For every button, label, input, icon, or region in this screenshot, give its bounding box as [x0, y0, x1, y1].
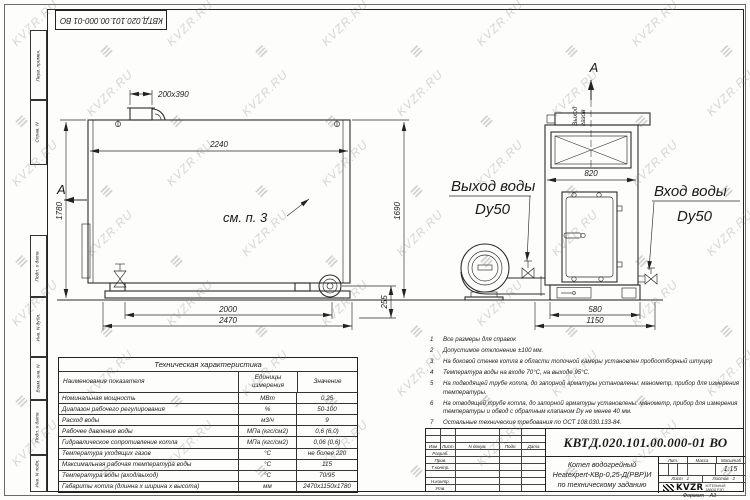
- title-block-cell: [456, 485, 501, 491]
- table-cell: %: [239, 404, 297, 414]
- side-strip-label: Инв. N дубл.: [36, 313, 41, 341]
- title-block-row: Разраб.: [426, 450, 545, 457]
- masshtab-label: Масштаб: [717, 457, 745, 463]
- boiler-drawing: 200x390 2240 1780 1690 см. п. 3: [47, 28, 744, 338]
- note-text: Остальные технические требования по ОСТ …: [443, 419, 744, 428]
- table-row: Максимальная рабочая температура воды°С1…: [59, 460, 357, 471]
- table-cell: 0,25: [297, 393, 357, 403]
- tech-table-title: Техническая характеристика: [59, 358, 357, 372]
- side-strip-label: Перв. примен.: [36, 49, 41, 81]
- note-number: 6: [430, 400, 443, 417]
- table-cell: °С: [239, 460, 297, 470]
- sheet-value: 1: [687, 476, 689, 481]
- name-line-3: по техническому заданию: [558, 480, 647, 490]
- title-block-cell: [456, 464, 501, 470]
- table-cell: Расход воды: [59, 415, 239, 425]
- table-row: Расход водым3/ч9: [59, 415, 357, 426]
- water-outlet-label: Выход воды: [451, 178, 535, 195]
- table-row: Диапазон рабочего регулирования%50-100: [59, 404, 357, 415]
- table-cell: Максимальная рабочая температура воды: [59, 460, 239, 470]
- table-cell: 0,06 (0,6): [297, 437, 357, 447]
- note-text: На отводящей трубе котла, до запорной ар…: [443, 400, 744, 417]
- tech-table-body: Номинальная мощностьМВт0,25Диапазон рабо…: [59, 393, 357, 492]
- side-strip-box: Подп. и дата: [30, 400, 47, 455]
- title-block-row: Утв.: [426, 485, 545, 491]
- title-block-cell: [500, 464, 522, 470]
- note-item: 7Остальные технические требования по ОСТ…: [430, 419, 744, 428]
- pump-flange: [319, 275, 341, 297]
- table-cell: МВт: [239, 393, 297, 403]
- water-inlet-valve: [638, 268, 657, 284]
- side-strip-label: Взам. инв. N: [36, 365, 41, 393]
- table-cell: Номинальная мощность: [59, 393, 239, 403]
- note-number: 1: [430, 336, 443, 345]
- table-cell: Рабочее давление воды: [59, 426, 239, 436]
- note-item: 3На боковой стенке котла в области топоч…: [430, 358, 744, 367]
- top-doc-number: КВТД.020.101.00.000-01 ВО: [60, 16, 163, 25]
- note-number: 7: [430, 419, 443, 428]
- title-block-cell: Разраб.: [426, 450, 456, 456]
- note-number: 5: [430, 380, 443, 397]
- title-block-grid: Лит. Масса Масштаб 1:15 Лист 1 Листов 2: [659, 457, 745, 493]
- note-number: 4: [430, 369, 443, 378]
- company-logo: KVZR КОТЕЛЬНЫЙ ЗАВОД РЭП: [659, 483, 745, 493]
- table-row: Номинальная мощностьМВт0,25: [59, 393, 357, 404]
- format-value: А3: [710, 493, 717, 499]
- title-block-cell: Подп.: [500, 443, 522, 449]
- side-strip-box: Инв. N подл.: [30, 455, 47, 492]
- table-cell: МПа (кгс/см2): [239, 437, 297, 447]
- table-row: Габариты котла (длинна х ширина х высота…: [59, 482, 357, 492]
- gas-outlet-label-1: Выход: [571, 106, 579, 126]
- tb-sheet-row: Лист 1 Листов 2: [659, 476, 745, 483]
- note-number: 3: [430, 358, 443, 367]
- side-strip-box: Инв. N дубл.: [30, 297, 47, 357]
- dim-height-right: 1690: [393, 202, 402, 220]
- note-item: 4Температура воды на входе 70°С, на выхо…: [430, 369, 744, 378]
- note-text: На подводящей трубе котла, до запорной а…: [443, 380, 744, 397]
- note-text: На боковой стенке котла в области топочн…: [443, 358, 744, 367]
- note-text: Все размеры для справок: [443, 336, 744, 345]
- format-label: Формат А3: [655, 493, 744, 499]
- title-block-cell: [522, 478, 545, 484]
- side-strip-label: Инв. N подл.: [36, 459, 41, 487]
- title-block-row: [426, 436, 545, 443]
- table-cell: 50-100: [297, 404, 357, 414]
- tb-grid-header: Лит. Масса Масштаб: [659, 457, 745, 464]
- table-cell: 2470х1150х1780: [297, 482, 357, 492]
- water-outlet-dn: Dy50: [475, 201, 511, 218]
- dim-width-top: 2240: [209, 140, 228, 149]
- furnace-door: [562, 192, 622, 282]
- lit-cells: [659, 464, 688, 475]
- title-block-cell: [426, 471, 456, 477]
- water-inlet-label: Вход воды: [654, 183, 727, 200]
- scale-value: 1:15: [716, 464, 745, 475]
- dim-stub: 200x390: [157, 90, 189, 99]
- title-block-cell: [522, 471, 545, 477]
- title-block-cell: [522, 464, 545, 470]
- title-block-row: [426, 471, 545, 478]
- title-block-cell: [522, 450, 545, 456]
- title-block-cell: Изм: [426, 443, 441, 449]
- title-block-cell: [456, 450, 501, 456]
- section-mark-top: А: [589, 60, 599, 75]
- water-outlet-valve: [522, 261, 534, 278]
- sheets-label: Листов: [713, 476, 729, 481]
- note-item: 5На подводящей трубе котла, до запорной …: [430, 380, 744, 397]
- title-block-row: Т.контр.: [426, 464, 545, 471]
- note-number: 2: [430, 347, 443, 356]
- title-block-cell: [426, 429, 441, 435]
- title-block-cell: [522, 436, 545, 442]
- tb-grid-values: 1:15: [659, 464, 745, 476]
- tech-table: Техническая характеристика Наименование …: [58, 357, 358, 493]
- title-block-cell: [426, 436, 441, 442]
- title-block-row: Пров.: [426, 457, 545, 464]
- title-block-cell: Утв.: [426, 485, 456, 491]
- title-block-cell: [456, 478, 501, 484]
- table-cell: м3/ч: [239, 415, 297, 425]
- title-block-cell: Т.контр.: [426, 464, 456, 470]
- title-block-cell: [522, 485, 545, 491]
- dim-foot: 255: [380, 295, 389, 310]
- title-block-cell: Лист: [441, 443, 456, 449]
- drawing-sheet: КВТД.020.101.00.000-01 ВО: [0, 0, 750, 500]
- table-cell: °С: [239, 471, 297, 481]
- table-cell: МПа (кгс/см2): [239, 426, 297, 436]
- title-block-row: Н.контр.: [426, 478, 545, 485]
- dim-height-left: 1780: [55, 202, 64, 220]
- side-strip-box: Взам. инв. N: [30, 357, 47, 400]
- note-item: 1Все размеры для справок: [430, 336, 744, 345]
- note-text: Температура воды на входе 70°С, на выход…: [443, 369, 744, 378]
- title-block-cell: [456, 429, 501, 435]
- table-cell: 115: [297, 460, 357, 470]
- format-word: Формат: [683, 493, 704, 499]
- dim-right-width: 820: [584, 169, 598, 178]
- sheets-value: 2: [733, 476, 735, 481]
- side-strip-box: Подп. и дата: [30, 235, 47, 297]
- lit-label: Лит.: [659, 457, 688, 463]
- kvzr-logo-text: KVZR: [676, 483, 703, 493]
- title-block-cell: Пров.: [426, 457, 456, 463]
- table-cell: Габариты котла (длинна х ширина х высота…: [59, 482, 239, 492]
- title-block-cell: [500, 471, 522, 477]
- table-cell: Диапазон рабочего регулирования: [59, 404, 239, 414]
- tech-table-header: Наименование показателя Единицы измерени…: [59, 372, 357, 393]
- section-mark-left: А: [56, 182, 66, 197]
- title-block-cell: [441, 436, 456, 442]
- title-block: ИзмЛистN докум.Подп.ДатаРазраб.Пров.Т.ко…: [425, 428, 744, 492]
- burner-fan: [461, 244, 545, 300]
- title-block-doc-number: КВТД.020.101.00.000-01 ВО: [546, 429, 745, 457]
- dim-right-bottom-outer: 1150: [586, 316, 604, 325]
- chimney-stub: [127, 108, 165, 120]
- dim-bottom-inner: 2000: [218, 305, 237, 314]
- tb-left: ИзмЛистN докум.Подп.ДатаРазраб.Пров.Т.ко…: [426, 429, 546, 491]
- title-block-cell: [456, 471, 501, 477]
- title-block-cell: [441, 429, 456, 435]
- title-block-cell: [500, 450, 522, 456]
- table-row: Температура уходящих газов°Сне более 220: [59, 449, 357, 460]
- title-block-cell: N докум.: [456, 443, 501, 449]
- title-block-cell: Дата: [522, 443, 545, 449]
- note-item: 6На отводящей трубе котла, до запорной а…: [430, 400, 744, 417]
- side-strip-label: Справ. N: [36, 122, 41, 142]
- table-cell: мм: [239, 482, 297, 492]
- side-strip-box: Справ. N: [30, 100, 47, 165]
- massa-cell: [688, 464, 716, 475]
- kvzr-logo-caption: КОТЕЛЬНЫЙ ЗАВОД РЭП: [705, 484, 725, 492]
- dim-bottom-outer: 2470: [218, 316, 237, 325]
- table-cell: Температура уходящих газов: [59, 449, 239, 459]
- title-block-row: [426, 429, 545, 436]
- title-block-cell: [456, 436, 501, 442]
- title-block-cell: [522, 457, 545, 463]
- dim-right-bottom-inner: 580: [588, 305, 602, 314]
- top-doc-number-box: КВТД.020.101.00.000-01 ВО: [55, 10, 167, 30]
- side-strip-label: Подп. и дата: [36, 412, 41, 442]
- table-cell: 0,6 (6,0): [297, 426, 357, 436]
- logo-caption-2: ЗАВОД РЭП: [705, 488, 725, 492]
- gas-outlet-label-2: газов: [580, 109, 587, 126]
- table-cell: 70/95: [297, 471, 357, 481]
- title-block-row: ИзмЛистN докум.Подп.Дата: [426, 443, 545, 450]
- name-line-1: Котел водогрейный: [568, 460, 636, 470]
- table-row: Гидравлическое сопротивление котлаМПа (к…: [59, 437, 357, 448]
- table-cell: °С: [239, 449, 297, 459]
- title-block-cell: [500, 485, 522, 491]
- title-block-cell: [500, 457, 522, 463]
- tech-col-header-name: Наименование показателя: [59, 372, 239, 392]
- table-cell: 9: [297, 415, 357, 425]
- tech-col-header-value: Значение: [298, 372, 357, 392]
- air-vent-icons: [115, 120, 339, 127]
- title-block-cell: [500, 429, 522, 435]
- sheet-label: Лист: [671, 476, 682, 481]
- table-cell: Температура воды (вход/выход): [59, 471, 239, 481]
- table-cell: Гидравлическое сопротивление котла: [59, 437, 239, 447]
- notes-list: 1Все размеры для справок2Допустимое откл…: [430, 336, 744, 431]
- table-row: Температура воды (вход/выход)°С70/95: [59, 471, 357, 482]
- title-block-name: Котел водогрейный Heatexpert-КВр-0,25-Д(…: [546, 457, 659, 493]
- title-block-cell: [522, 429, 545, 435]
- water-inlet-dn: Dy50: [677, 208, 713, 225]
- note-text: Допустимое отклонение ±100 мм.: [443, 347, 744, 356]
- title-block-cell: Н.контр.: [426, 478, 456, 484]
- massa-label: Масса: [688, 457, 717, 463]
- table-row: Рабочее давление водыМПа (кгс/см2)0,6 (6…: [59, 426, 357, 437]
- tech-col-header-units: Единицы измерения: [239, 372, 298, 392]
- note-item: 2Допустимое отклонение ±100 мм.: [430, 347, 744, 356]
- name-line-2: Heatexpert-КВр-0,25-Д(РВР)И: [553, 470, 652, 480]
- note-ref-label: см. п. 3: [223, 210, 268, 225]
- title-block-cell: [456, 457, 501, 463]
- right-view: 820: [535, 60, 657, 330]
- kvzr-logo-icon: [663, 484, 674, 491]
- side-channel: [82, 224, 90, 278]
- side-strip-box: Перв. примен.: [30, 30, 47, 100]
- table-cell: не более 220: [297, 449, 357, 459]
- title-block-cell: [500, 478, 522, 484]
- title-block-cell: [500, 436, 522, 442]
- side-strip-label: Подп. и дата: [36, 251, 41, 281]
